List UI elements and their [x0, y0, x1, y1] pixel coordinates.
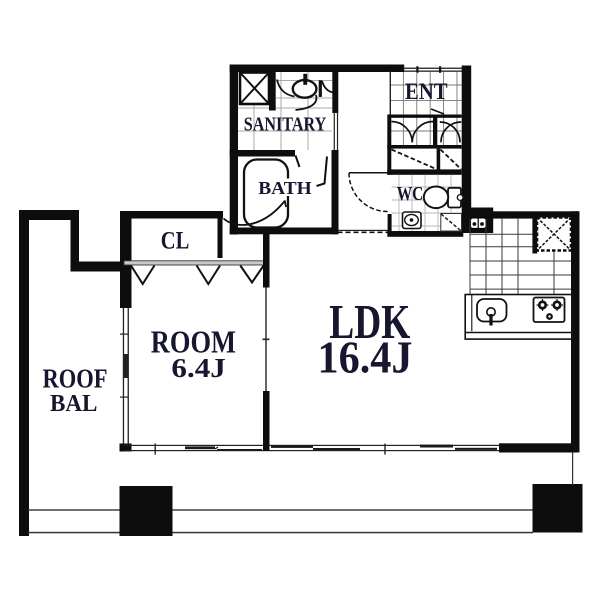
svg-text:ROOF: ROOF: [43, 364, 108, 394]
svg-text:6.4J: 6.4J: [171, 353, 225, 384]
svg-text:16.4J: 16.4J: [318, 332, 413, 383]
svg-text:WC: WC: [397, 183, 424, 205]
svg-text:BATH: BATH: [258, 178, 312, 198]
svg-text:CL: CL: [161, 226, 190, 255]
svg-text:BAL: BAL: [50, 390, 98, 417]
svg-text:ENT: ENT: [405, 79, 448, 104]
svg-text:SANITARY: SANITARY: [244, 114, 327, 136]
